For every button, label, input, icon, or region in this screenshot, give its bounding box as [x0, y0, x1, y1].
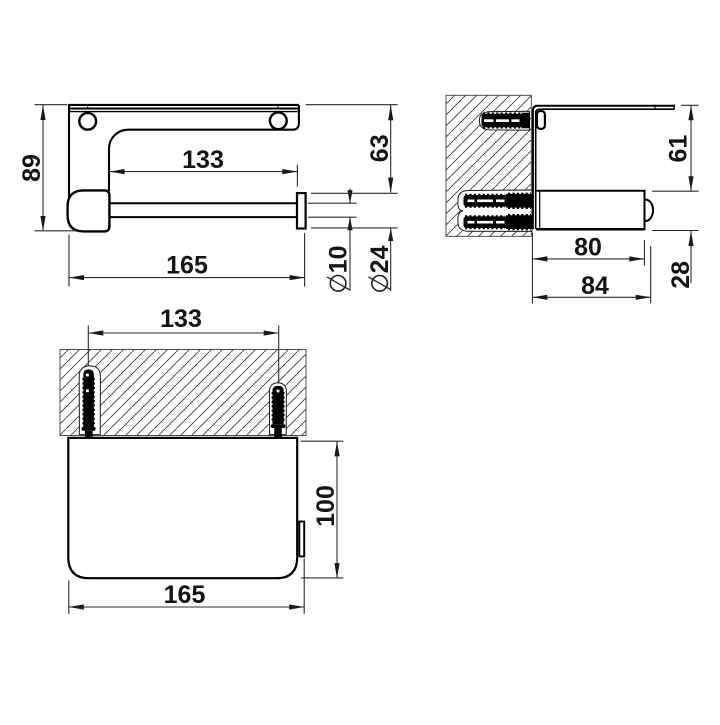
svg-text:28: 28 [667, 261, 695, 289]
svg-text:165: 165 [166, 252, 208, 280]
svg-text:133: 133 [182, 146, 224, 174]
svg-text:10: 10 [325, 246, 353, 274]
svg-text:100: 100 [312, 485, 340, 527]
svg-text:80: 80 [574, 233, 602, 261]
svg-text:61: 61 [665, 135, 693, 163]
svg-text:165: 165 [164, 581, 206, 609]
svg-text:24: 24 [366, 245, 394, 273]
svg-text:133: 133 [160, 305, 202, 333]
svg-text:63: 63 [366, 134, 394, 162]
svg-text:89: 89 [18, 154, 46, 182]
svg-text:84: 84 [581, 272, 609, 300]
